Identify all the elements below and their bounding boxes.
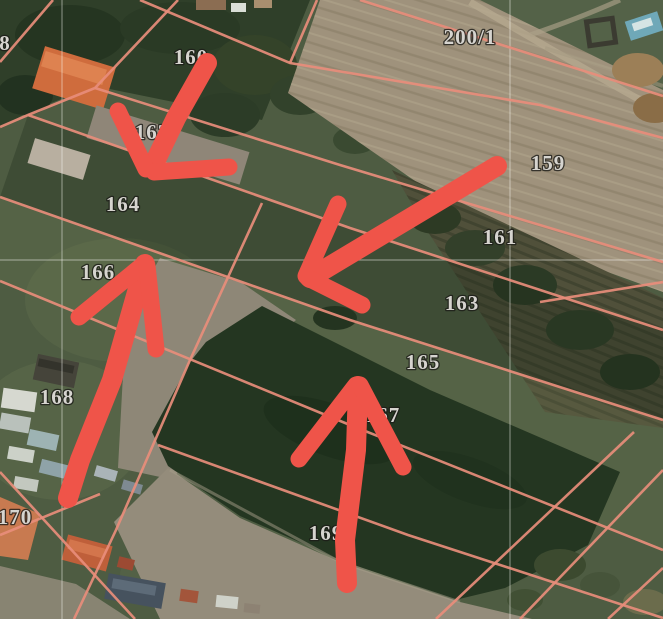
parcel-label-165: 165 — [406, 350, 441, 374]
parcel-label-159: 159 — [531, 151, 566, 175]
tree-blob — [190, 93, 260, 137]
roof-edge — [254, 0, 272, 8]
white-car — [231, 3, 246, 12]
parcel-label-168: 168 — [40, 385, 75, 409]
parcel-label-8: 8 — [0, 31, 11, 55]
red-shed — [179, 589, 198, 603]
parcel-label-170: 170 — [0, 505, 32, 529]
arrow-down-left-head — [154, 167, 229, 172]
parcel-label-163: 163 — [445, 291, 480, 315]
parcel-label-161: 161 — [483, 225, 518, 249]
satellite-map: 8160200/11621591641611661631651671681701… — [0, 0, 663, 619]
parcel-label-200-1: 200/1 — [444, 25, 497, 49]
roof-edge — [196, 0, 226, 10]
shed — [244, 603, 261, 614]
arrow-up-left-head — [147, 266, 156, 349]
white-van — [215, 595, 238, 609]
parcel-label-164: 164 — [106, 192, 141, 216]
map-canvas[interactable]: 8160200/11621591641611661631651671681701… — [0, 0, 663, 619]
parcel-label-166: 166 — [81, 260, 116, 284]
